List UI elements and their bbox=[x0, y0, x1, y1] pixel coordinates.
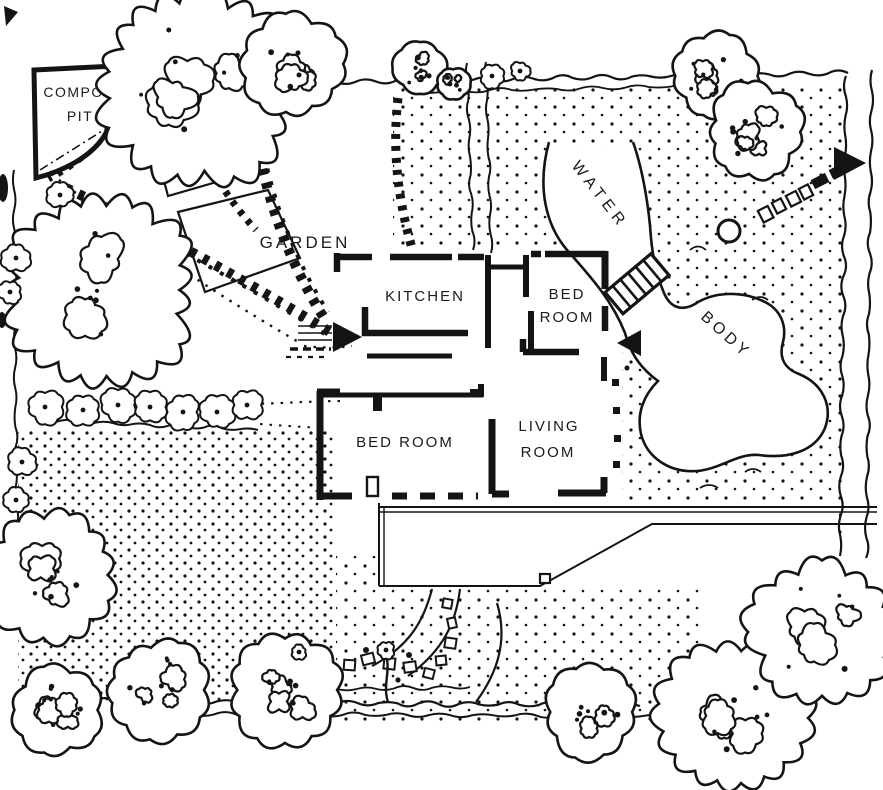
shrub-dot bbox=[518, 69, 523, 74]
tree-foliage-blob bbox=[268, 691, 290, 713]
tree-dot bbox=[99, 332, 104, 337]
tree-dot bbox=[714, 88, 718, 92]
tree-foliage-blob bbox=[755, 106, 777, 126]
pond-circle bbox=[718, 220, 740, 242]
tree-dot bbox=[689, 87, 693, 91]
tree-dot bbox=[170, 687, 175, 692]
shrub-dot bbox=[297, 650, 302, 655]
tree-dot bbox=[127, 685, 132, 690]
tree-canopy bbox=[437, 68, 470, 99]
tree-dot bbox=[721, 57, 726, 62]
shrub-dot bbox=[14, 256, 19, 261]
shrub bbox=[233, 390, 263, 419]
shrub-dot bbox=[148, 405, 153, 410]
terrace-step bbox=[540, 574, 550, 583]
tree-dot bbox=[765, 713, 770, 718]
shrub-dot bbox=[8, 290, 13, 295]
shrub bbox=[135, 391, 167, 423]
tree-dot bbox=[724, 746, 730, 752]
tree-dot bbox=[701, 73, 705, 77]
tree-dot bbox=[139, 93, 143, 97]
door-jamb bbox=[373, 396, 382, 411]
compost-pit-label-line2: PIT bbox=[67, 108, 93, 124]
tree-dot bbox=[95, 289, 99, 293]
tree-dot bbox=[779, 124, 784, 129]
shrub-dot bbox=[43, 405, 48, 410]
tree-dot bbox=[419, 75, 424, 80]
tree bbox=[437, 68, 470, 99]
tree-dot bbox=[73, 582, 79, 588]
tree-dot bbox=[142, 701, 146, 705]
hedge-line bbox=[865, 70, 873, 558]
tree-dot bbox=[291, 701, 296, 706]
edge-shrub-mark bbox=[0, 174, 8, 202]
tree bbox=[5, 194, 192, 389]
tree-dot bbox=[93, 297, 99, 303]
shrub bbox=[66, 395, 99, 425]
tree-dot bbox=[577, 711, 583, 717]
tree-dot bbox=[447, 81, 452, 86]
tree-dot bbox=[286, 53, 290, 57]
tree-dot bbox=[287, 679, 293, 685]
tree-dot bbox=[712, 730, 716, 734]
tree-dot bbox=[288, 84, 294, 90]
tree-dot bbox=[88, 296, 93, 301]
labels: GARDEN bbox=[260, 233, 351, 252]
shrub-dot bbox=[181, 410, 186, 415]
shrub bbox=[481, 65, 504, 89]
tree-dot bbox=[78, 706, 83, 711]
tree-dot bbox=[222, 71, 226, 75]
tree-dot bbox=[731, 697, 737, 703]
tree-dot bbox=[48, 594, 54, 600]
tree-dot bbox=[799, 587, 803, 591]
shrub-dot bbox=[14, 498, 19, 503]
kitchen-label: KITCHEN bbox=[385, 288, 465, 305]
tree-dot bbox=[615, 712, 621, 718]
shrub-dot bbox=[215, 410, 220, 415]
tree-dot bbox=[42, 698, 46, 702]
tree-dot bbox=[165, 656, 169, 660]
bedroom-lower-label: BED ROOM bbox=[356, 434, 454, 451]
tree-dot bbox=[850, 605, 854, 609]
tree-dot bbox=[842, 666, 848, 672]
tree-dot bbox=[446, 76, 450, 80]
tree-dot bbox=[579, 705, 584, 710]
dotted-path bbox=[252, 401, 344, 404]
shrub-dot bbox=[20, 460, 25, 465]
tree-dot bbox=[166, 28, 171, 33]
tree-dot bbox=[267, 679, 271, 683]
entrance-arrow-icon bbox=[834, 147, 866, 180]
living-room-label-line1: LIVING bbox=[518, 418, 579, 435]
tree-dot bbox=[426, 73, 431, 78]
shrub-dot bbox=[490, 74, 495, 79]
shrub-dot bbox=[116, 403, 121, 408]
tree-dot bbox=[159, 684, 164, 689]
tree-dot bbox=[181, 126, 187, 132]
tree-dot bbox=[692, 62, 696, 66]
shrub bbox=[0, 281, 21, 304]
tree-dot bbox=[106, 253, 111, 258]
tree-dot bbox=[75, 286, 81, 292]
tree-dot bbox=[168, 662, 172, 666]
tree-dot bbox=[235, 53, 240, 58]
shrub bbox=[101, 388, 136, 423]
tree-dot bbox=[407, 81, 411, 85]
terrace-underlay bbox=[379, 503, 839, 587]
tree-dot bbox=[454, 83, 459, 88]
tree-canopy bbox=[546, 663, 636, 763]
tree-dot bbox=[743, 119, 748, 124]
tree-dot bbox=[296, 50, 301, 55]
tree-foliage-blob bbox=[163, 694, 178, 708]
shrub-dot bbox=[384, 648, 389, 653]
shrub-dot bbox=[58, 193, 63, 198]
tree-foliage-blob bbox=[455, 75, 462, 82]
tree-dot bbox=[755, 715, 760, 720]
tree-dot bbox=[36, 702, 41, 707]
site-plan-drawing: COMPOST PIT WATER BODY bbox=[0, 0, 883, 790]
tree-dot bbox=[419, 68, 423, 72]
tree-dot bbox=[51, 722, 56, 727]
tree-dot bbox=[92, 231, 97, 236]
tree-dot bbox=[586, 709, 590, 713]
tree-dot bbox=[49, 684, 54, 689]
tree-dot bbox=[787, 665, 791, 669]
site-plan: COMPOST PIT WATER BODY bbox=[0, 0, 883, 790]
bedroom-upper-label-line1: BED bbox=[549, 286, 586, 303]
tree-dot bbox=[293, 683, 299, 689]
corner-mark bbox=[4, 6, 18, 26]
bedroom-upper-label-line2: ROOM bbox=[540, 309, 595, 326]
tree bbox=[546, 663, 636, 763]
tree-dot bbox=[415, 55, 421, 61]
garden-label: GARDEN bbox=[260, 233, 351, 252]
tree-dot bbox=[601, 710, 607, 716]
tree-dot bbox=[49, 698, 53, 702]
living-room-label-line2: ROOM bbox=[521, 444, 576, 461]
tree-dot bbox=[173, 59, 178, 64]
tree-dot bbox=[458, 88, 462, 92]
tree-dot bbox=[753, 685, 758, 690]
tree-dot bbox=[837, 594, 841, 598]
tree-dot bbox=[76, 712, 80, 716]
door-jamb bbox=[367, 477, 378, 496]
tree-dot bbox=[735, 151, 740, 156]
tree-dot bbox=[33, 591, 37, 595]
shrub-dot bbox=[245, 403, 250, 408]
tree-dot bbox=[268, 49, 274, 55]
dotted-path bbox=[260, 424, 322, 428]
shrub bbox=[166, 395, 199, 431]
tree-dot bbox=[297, 73, 302, 78]
tree-dot bbox=[414, 66, 418, 70]
tree-dot bbox=[730, 125, 735, 130]
shrub bbox=[28, 391, 63, 426]
shrub bbox=[199, 395, 235, 428]
tree bbox=[231, 634, 342, 749]
tree-dot bbox=[575, 718, 579, 722]
tree-dot bbox=[56, 570, 60, 574]
tree-dot bbox=[754, 136, 758, 140]
shrub-dot bbox=[81, 408, 86, 413]
tree-dot bbox=[50, 575, 54, 579]
